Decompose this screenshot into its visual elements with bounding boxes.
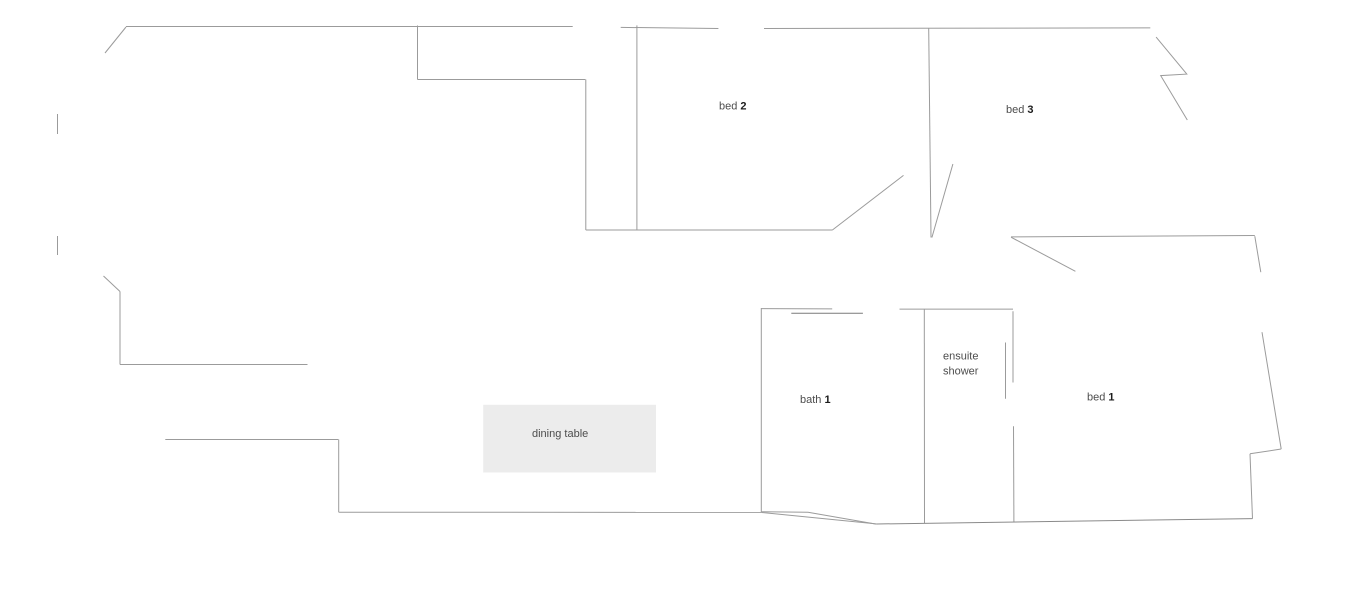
svg-text:shower: shower xyxy=(943,366,979,378)
svg-text:bed 1: bed 1 xyxy=(1087,392,1115,404)
svg-text:dining table: dining table xyxy=(532,428,588,440)
svg-text:bed 3: bed 3 xyxy=(1006,104,1034,116)
svg-text:bath 1: bath 1 xyxy=(800,394,831,406)
svg-text:ensuite: ensuite xyxy=(943,351,978,363)
svg-text:bed 2: bed 2 xyxy=(719,100,747,112)
